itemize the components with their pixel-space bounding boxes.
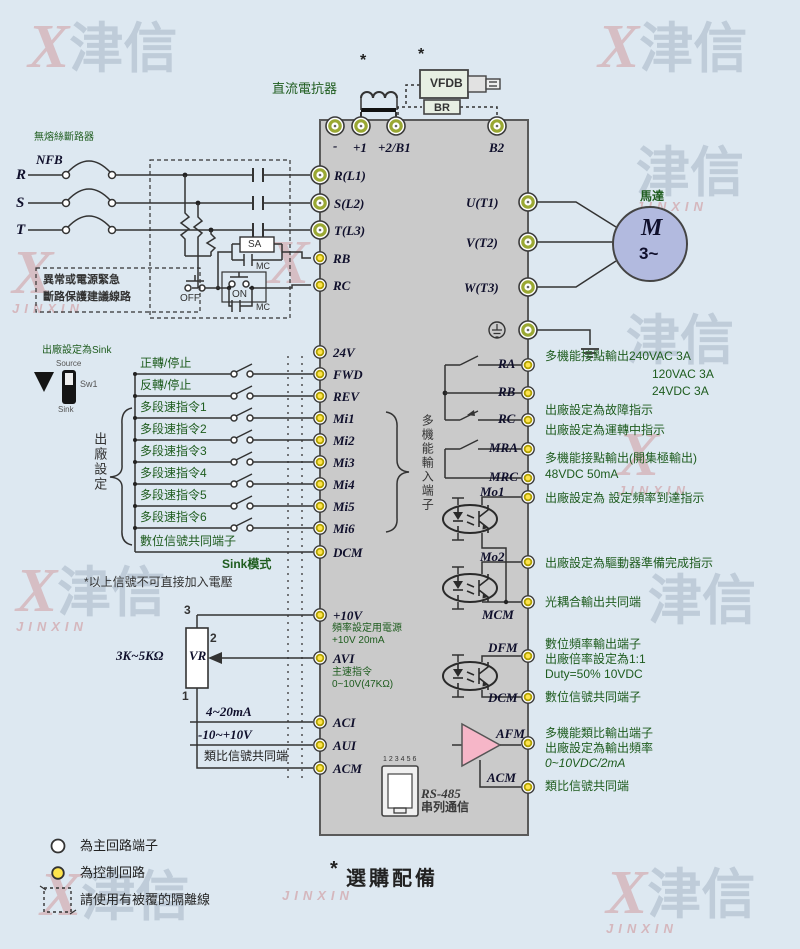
afm-note-2: 出廠設定為輸出頻率 xyxy=(545,742,653,755)
voltage-warning: *以上信號不可直接加入電壓 xyxy=(84,576,233,589)
legend-main-circuit: 為主回路端子 xyxy=(80,839,158,853)
terminal-dfm xyxy=(522,650,534,662)
terminal-plus2-b1 xyxy=(387,117,405,135)
terminal-rb xyxy=(522,387,534,399)
terminal-label-avi: AVI xyxy=(333,651,354,667)
dfm-note-1: 數位頻率輸出端子 xyxy=(545,638,641,651)
terminal-label-mra: MRA xyxy=(489,440,518,456)
terminal-label-dcm-right: DCM xyxy=(488,690,518,706)
terminal-label-fwd: FWD xyxy=(333,367,363,383)
vr-pin1-label: 1 xyxy=(182,690,189,703)
relay-note-120vac: 120VAC 3A xyxy=(652,368,714,381)
acm-signal-label: 類比信號共同端 xyxy=(204,750,288,763)
relay-note-48vdc: 48VDC 50mA xyxy=(545,468,618,481)
terminal-label-w-t3: W(T3) xyxy=(464,280,499,296)
terminal-label-mi4: Mi4 xyxy=(333,477,355,493)
terminal-label-afm: AFM xyxy=(496,726,525,742)
vfdb-plug xyxy=(486,79,500,89)
on-label: ON xyxy=(232,289,247,300)
aui-signal-label: -10~+10V xyxy=(198,727,252,743)
terminal-mra xyxy=(522,443,534,455)
legend-main-terminal-icon xyxy=(52,840,65,853)
analog-input-wiring xyxy=(186,615,313,768)
terminal-mi4 xyxy=(314,478,326,490)
phase-s-label: S xyxy=(16,195,24,212)
terminal-rc-left xyxy=(314,279,326,291)
input-row-label: 多段速指令4 xyxy=(140,467,207,480)
relay-note-running: 出廠設定為運轉中指示 xyxy=(545,424,665,437)
terminal-w-t3 xyxy=(519,278,537,296)
legend-control-circuit: 為控制回路 xyxy=(80,866,145,880)
dfm-note-3: Duty=50% 10VDC xyxy=(545,668,643,681)
terminal-fwd xyxy=(314,368,326,380)
terminal-label-mo1: Mo1 xyxy=(480,484,505,500)
terminal-label-s-l2: S(L2) xyxy=(334,196,364,212)
terminal-label-10v: +10V xyxy=(333,608,362,624)
motor-phase: 3~ xyxy=(639,244,658,264)
mo2-note: 出廠設定為驅動器準備完成指示 xyxy=(545,557,713,570)
rs485-pin-numbers: 123456 xyxy=(383,756,418,764)
terminal-label-u-t1: U(T1) xyxy=(466,195,499,211)
terminal-t-l3 xyxy=(311,221,329,239)
optional-equipment-star: * xyxy=(330,858,338,881)
wiring-diagram-page: X津信 X津信 津信JINXIN XJINXIN X 津信 X津信JINXIN … xyxy=(0,0,800,949)
terminal-label-mrc: MRC xyxy=(489,469,518,485)
terminal-mi2 xyxy=(314,434,326,446)
terminal-mo1 xyxy=(522,491,534,503)
vfdb-connector xyxy=(468,76,486,92)
sink-default-note: 出廠設定為Sink xyxy=(42,345,111,356)
terminal-avi xyxy=(314,652,326,664)
mc-label-1: MC xyxy=(256,262,270,272)
input-row-label: 多段速指令6 xyxy=(140,511,207,524)
terminal-ra xyxy=(522,359,534,371)
aci-signal-label: 4~20mA xyxy=(206,704,252,720)
mc-label-2: MC xyxy=(256,303,270,313)
terminal-label-b2: B2 xyxy=(489,140,504,156)
terminal-rc xyxy=(522,414,534,426)
motor-label: 馬達 xyxy=(640,190,664,203)
terminal-label-rc-left: RC xyxy=(333,278,350,294)
terminal-mrc xyxy=(522,472,534,484)
terminal-minus xyxy=(326,117,344,135)
terminal-label-t-l3: T(L3) xyxy=(334,223,365,239)
terminal-rev xyxy=(314,390,326,402)
rs485-serial-label: 串列通信 xyxy=(421,801,469,814)
terminal-acm-left xyxy=(314,762,326,774)
off-label: OFF xyxy=(180,293,200,304)
input-row-label: 多段速指令3 xyxy=(140,445,207,458)
terminal-b2 xyxy=(488,117,506,135)
source-label: Source xyxy=(56,360,81,369)
terminal-label-aui: AUI xyxy=(333,738,356,754)
input-row-label: 多段速指令1 xyxy=(140,401,207,414)
vr-pin2-label: 2 xyxy=(210,632,217,645)
terminal-label-rb: RB xyxy=(498,384,515,400)
terminal-mi6 xyxy=(314,522,326,534)
factory-setting-brace xyxy=(110,408,132,545)
terminal-label-acm-right: ACM xyxy=(487,770,516,786)
vfdb-label: VFDB xyxy=(430,77,463,90)
sink-label: Sink xyxy=(58,406,74,415)
shield-dotted-lines xyxy=(288,356,302,782)
terminal-label-dfm: DFM xyxy=(488,640,518,656)
optional-star: * xyxy=(418,46,424,64)
terminal-mi3 xyxy=(314,456,326,468)
terminal-label-mi3: Mi3 xyxy=(333,455,355,471)
vr-pin3-label: 3 xyxy=(184,604,191,617)
terminal-label-rb-left: RB xyxy=(333,251,350,267)
terminal-label-v-t2: V(T2) xyxy=(466,235,498,251)
relay-note-fault: 出廠設定為故障指示 xyxy=(545,404,653,417)
input-row-label: 反轉/停止 xyxy=(140,379,191,392)
terminal-label-plus2b1: +2/B1 xyxy=(378,140,411,156)
terminal-acm-right xyxy=(522,781,534,793)
terminal-label-mo2: Mo2 xyxy=(480,549,505,565)
terminal-mcm xyxy=(522,596,534,608)
terminal-label-r-l1: R(L1) xyxy=(334,168,366,184)
terminal-label-mi1: Mi1 xyxy=(333,411,355,427)
phase-t-label: T xyxy=(16,222,25,239)
terminal-label-rc: RC xyxy=(498,411,515,427)
afm-note-1: 多機能類比輸出端子 xyxy=(545,727,653,740)
breaker-note: 無熔絲斷路器 xyxy=(34,132,94,143)
legend-control-terminal-icon xyxy=(52,867,64,879)
sa-label: SA xyxy=(248,239,261,250)
optional-equipment-label: 選購配備 xyxy=(346,862,438,891)
terminal-mi5 xyxy=(314,500,326,512)
terminal-label-mi5: Mi5 xyxy=(333,499,355,515)
legend-shielded-wire-icon xyxy=(44,888,71,912)
vr-wiper-arrow xyxy=(208,652,222,664)
legend-shielded-wire: 請使用有被覆的隔離線 xyxy=(80,893,210,907)
input-row-label: 正轉/停止 xyxy=(140,357,191,370)
br-label: BR xyxy=(434,102,450,114)
dc-reactor-label: 直流電抗器 xyxy=(272,82,337,96)
nfb-label: NFB xyxy=(36,152,63,168)
sw1-label: Sw1 xyxy=(80,380,98,390)
input-row-label: 多段速指令2 xyxy=(140,423,207,436)
10v-note-2: +10V 20mA xyxy=(332,635,385,646)
terminal-label-plus1: +1 xyxy=(353,140,367,156)
terminal-label-acm-left: ACM xyxy=(333,761,362,777)
mo1-note: 出廠設定為 設定頻率到達指示 xyxy=(545,492,704,505)
terminal-dcm-right xyxy=(522,691,534,703)
terminal-label-minus: - xyxy=(333,138,337,154)
vr-label: VR xyxy=(189,648,206,664)
terminal-label-mi6: Mi6 xyxy=(333,521,355,537)
sink-mode-label: Sink模式 xyxy=(222,558,271,571)
factory-setting-label: 出廠設定 xyxy=(92,432,106,492)
optional-star: * xyxy=(360,52,366,70)
afm-note-3: 0~10VDC/2mA xyxy=(545,757,625,770)
terminal-mo2 xyxy=(522,556,534,568)
input-row-label: 多段速指令5 xyxy=(140,489,207,502)
terminal-24v xyxy=(314,346,326,358)
protect-note-line2: 斷路保護建議線路 xyxy=(43,291,131,303)
resistor-t xyxy=(207,230,215,256)
terminal-mi1 xyxy=(314,412,326,424)
on-button-symbol xyxy=(230,272,248,277)
acm-right-note: 類比信號共同端 xyxy=(545,780,629,793)
terminal-label-mi2: Mi2 xyxy=(333,433,355,449)
protect-note-line1: 異常或電源緊急 xyxy=(43,274,120,286)
dfm-note-2: 出廠倍率設定為1:1 xyxy=(545,653,646,666)
terminal-label-dcm-left: DCM xyxy=(333,545,363,561)
terminal-v-t2 xyxy=(519,233,537,251)
10v-note-1: 頻率設定用電源 xyxy=(332,623,402,634)
mc-contact-symbols xyxy=(253,168,263,237)
avi-note-2: 0~10V(47KΩ) xyxy=(332,679,393,690)
terminal-plus1 xyxy=(352,117,370,135)
input-row-label: 數位信號共同端子 xyxy=(140,535,236,548)
terminal-ground xyxy=(519,321,537,339)
nfb-breaker-poles xyxy=(68,161,110,227)
resistor-r xyxy=(181,175,189,256)
terminal-label-rev: REV xyxy=(333,389,359,405)
relay-note-240vac: 多機能接點輸出240VAC 3A xyxy=(545,350,691,363)
relay-note-24vdc: 24VDC 3A xyxy=(652,385,709,398)
avi-note-1: 主速指令 xyxy=(332,667,372,678)
terminal-aci xyxy=(314,716,326,728)
motor-m: M xyxy=(641,215,662,242)
dcm-right-note: 數位信號共同端子 xyxy=(545,691,641,704)
off-button-symbol xyxy=(186,275,204,281)
terminal-label-aci: ACI xyxy=(333,715,355,731)
legend-icons xyxy=(40,840,76,915)
terminal-dcm-left xyxy=(314,546,326,558)
terminal-10v xyxy=(314,609,326,621)
vr-value-label: 3K~5KΩ xyxy=(116,648,163,664)
terminal-s-l2 xyxy=(311,194,329,212)
sw1-switch-knob xyxy=(65,373,73,385)
mcm-note: 光耦合輸出共同端 xyxy=(545,596,641,609)
terminal-u-t1 xyxy=(519,193,537,211)
terminal-r-l1 xyxy=(311,166,329,184)
terminal-aui xyxy=(314,739,326,751)
terminal-rb-left xyxy=(314,252,326,264)
terminal-label-ra: RA xyxy=(498,356,515,372)
multi-input-terminals-label: 多機能輸入端子 xyxy=(420,414,433,512)
terminal-label-mcm: MCM xyxy=(482,607,514,623)
phase-r-label: R xyxy=(16,167,26,184)
sw1-arrow xyxy=(34,372,54,392)
terminal-label-24v: 24V xyxy=(333,345,355,361)
relay-note-open-collector: 多機能接點輸出(開集極輸出) xyxy=(545,452,697,465)
